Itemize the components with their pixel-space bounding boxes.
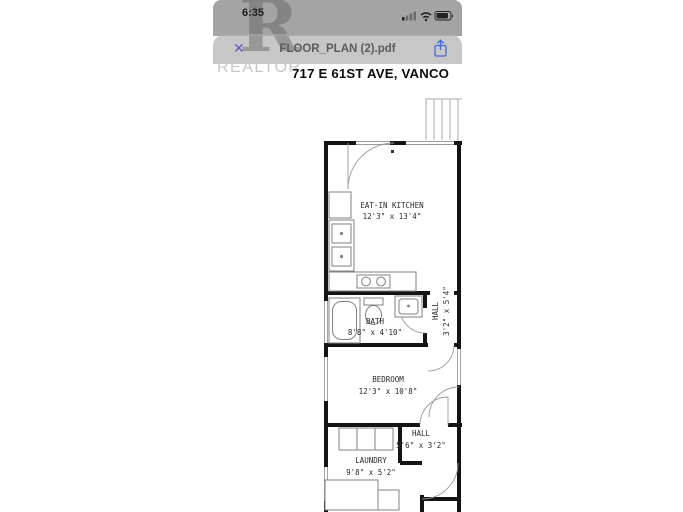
address-heading: 717 E 61ST AVE, VANCO [292,66,449,81]
room-label-bedroom: BEDROOM [372,375,404,384]
status-bar: 6:35 [213,0,462,28]
screenshot-page: R 6:35 [0,0,683,512]
status-time: 6:35 [242,7,264,19]
wifi-icon [421,13,431,21]
room-dims-kitchen: 12'3" x 13'4" [363,212,422,221]
room-dims-bedroom: 12'3" x 10'8" [359,387,418,396]
room-label-laundry: LAUNDRY [355,456,387,465]
phone-screenshot: R 6:35 [213,0,462,512]
room-label-bath: BATH [366,317,385,326]
close-icon[interactable]: ✕ [233,40,245,57]
cellular-signal-icon [402,12,416,21]
pdf-filename: FLOOR_PLAN (2).pdf [213,43,462,55]
floor-plan: EAT-IN KITCHEN 12'3" x 13'4" BATH 8'8" x… [318,95,462,512]
status-icons [402,9,454,27]
room-dims-hall-upper: 3'2" x 5'4" [442,286,451,336]
room-dims-hall-lower: 5'6" x 3'2" [396,441,446,450]
realtor-watermark-text: REALTOR [217,59,302,77]
room-label-kitchen: EAT-IN KITCHEN [360,201,423,210]
staircase [426,99,462,141]
room-dims-bath: 8'8" x 4'10" [348,328,402,337]
pdf-document: REALTOR 717 E 61ST AVE, VANCO [213,64,462,512]
battery-icon [435,12,453,21]
room-dims-laundry: 9'8" x 5'2" [346,468,396,477]
room-label-hall-upper: HALL [431,301,440,320]
pdf-preview-sheet: ✕ FLOOR_PLAN (2).pdf REALTOR 717 E 61ST … [213,34,462,512]
share-icon[interactable] [433,39,448,63]
room-label-hall-lower: HALL [412,429,431,438]
